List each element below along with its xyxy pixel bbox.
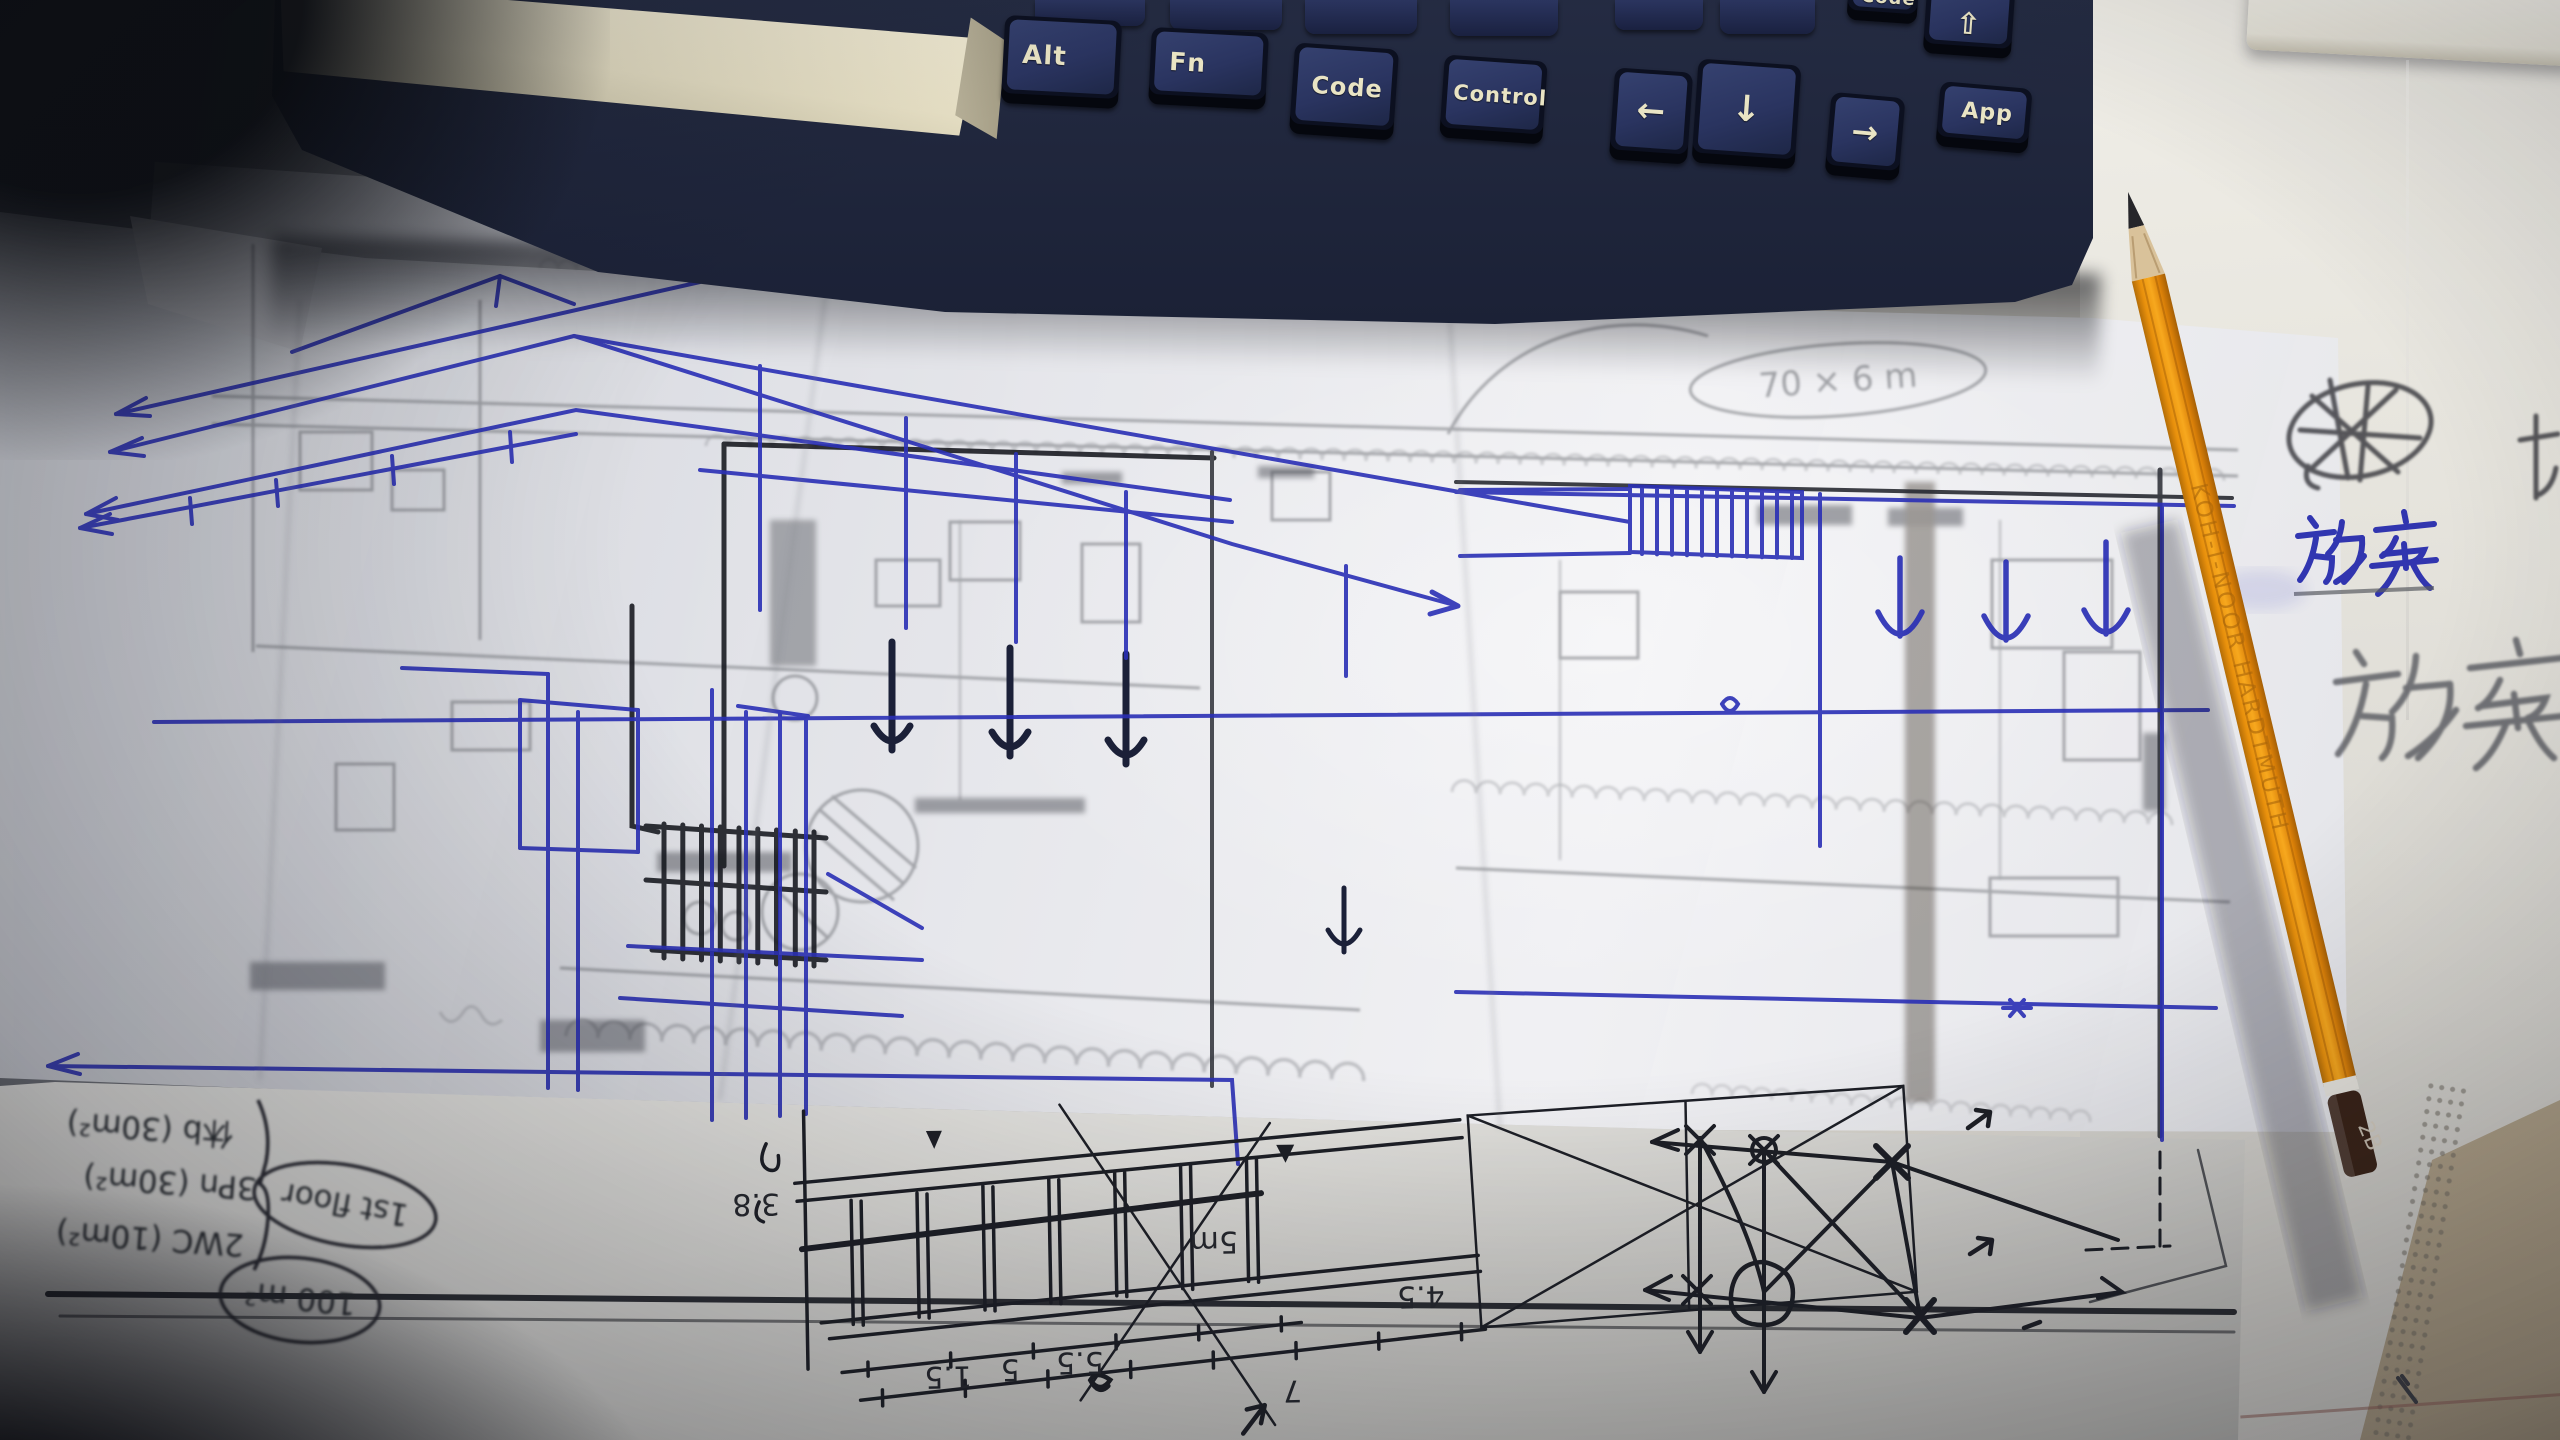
photo-desk-scene: 70 × 6 m: [0, 0, 2560, 1440]
dim-1-5: 1.5: [924, 1358, 972, 1394]
crossed-out-note: [2280, 370, 2558, 498]
key-code-top-label: Code: [1860, 0, 1916, 10]
pencil-plan-dark-bars: [250, 466, 2165, 1102]
oval-note-area: 100 m²: [243, 1274, 358, 1321]
black-down-arrows: [874, 642, 1360, 952]
key-code-label: Code: [1310, 70, 1383, 103]
dim-5-5: 5.5: [1056, 1344, 1104, 1380]
partial-key[interactable]: [1720, 0, 1815, 34]
partial-key[interactable]: [1305, 0, 1417, 34]
key-arrow-down[interactable]: ↓: [1691, 59, 1801, 170]
key-arrow-right[interactable]: →: [1825, 92, 1906, 181]
key-arrow-left[interactable]: ←: [1609, 67, 1693, 164]
arrow-down-icon: ↓: [1730, 87, 1764, 130]
elevation-sketch: 3.8 5m 4.5 1.5 5 5.5 7: [731, 1086, 1920, 1440]
partial-key[interactable]: [1615, 0, 1703, 30]
shift-arrow-icon: ⇧: [1954, 6, 1983, 43]
arrow-left-icon: ←: [1635, 90, 1667, 132]
key-alt-label: Alt: [1022, 40, 1068, 72]
key-control[interactable]: Control: [1439, 55, 1548, 145]
partial-key[interactable]: [1450, 0, 1558, 36]
note-fangqi-blue: [2298, 512, 2436, 594]
dim-5m: 5m: [1189, 1224, 1238, 1260]
program-line-3: 2WC (10m²): [55, 1213, 245, 1262]
pencil-graphite-tip: [2120, 190, 2144, 229]
dim-3-8: 3.8: [732, 1186, 780, 1222]
key-alt[interactable]: Alt: [1001, 15, 1122, 109]
dim-4-5: 4.5: [1397, 1278, 1445, 1314]
dim-7: 7: [1283, 1372, 1303, 1407]
key-app-label: App: [1960, 98, 2014, 127]
program-notes: 休b (30m²) 3Pn (30m²) 2WC (10m²) 1st floo…: [55, 1100, 443, 1350]
pencil-wood-cone: [2120, 223, 2165, 281]
dim-5: 5: [1000, 1351, 1020, 1386]
key-code[interactable]: Code: [1289, 42, 1399, 140]
note-underline: [2294, 588, 2434, 594]
program-line-1: 休b (30m²): [66, 1104, 235, 1152]
program-line-2: 3Pn (30m²): [82, 1158, 258, 1206]
key-control-label: Control: [1453, 80, 1548, 110]
key-fn[interactable]: Fn: [1148, 27, 1269, 110]
oval-note-floor: 1st floor: [279, 1175, 412, 1233]
arrow-right-icon: →: [1850, 111, 1881, 151]
key-fn-label: Fn: [1169, 47, 1207, 78]
note-fangqi-pencil: [2336, 640, 2560, 768]
key-shift[interactable]: ⇧: [1923, 0, 2016, 59]
key-app[interactable]: App: [1935, 81, 2032, 154]
pencil[interactable]: KOH-I-NOOR HARDTMUTH 2B: [2044, 185, 2420, 1311]
partial-key[interactable]: [1170, 0, 1282, 30]
